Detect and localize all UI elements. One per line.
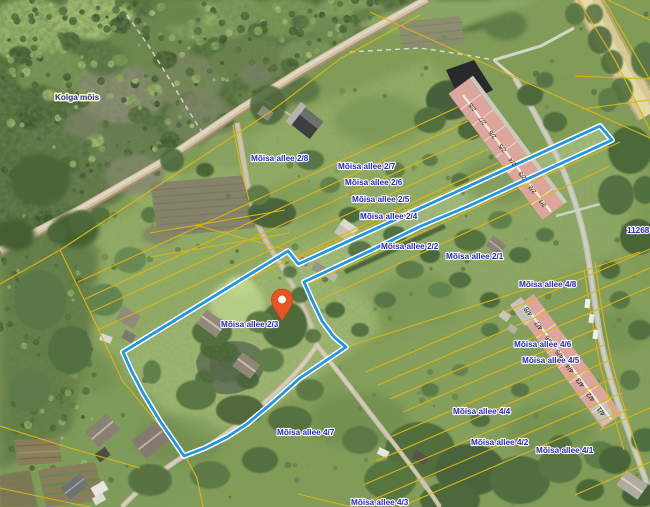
svg-text:Mõisa allee 4/2: Mõisa allee 4/2 bbox=[471, 438, 529, 447]
svg-text:Mõisa allee 4/1: Mõisa allee 4/1 bbox=[536, 446, 594, 455]
svg-text:11268: 11268 bbox=[627, 226, 650, 235]
svg-text:Mõisa allee 2/8: Mõisa allee 2/8 bbox=[251, 154, 309, 163]
svg-text:Mõisa allee 2/1: Mõisa allee 2/1 bbox=[446, 252, 504, 261]
svg-text:Mõisa allee 2/6: Mõisa allee 2/6 bbox=[345, 178, 403, 187]
svg-text:Kolga mõis: Kolga mõis bbox=[55, 93, 100, 102]
svg-text:Mõisa allee 4/8: Mõisa allee 4/8 bbox=[519, 280, 577, 289]
svg-text:Mõisa allee 4/4: Mõisa allee 4/4 bbox=[453, 407, 511, 416]
svg-text:Mõisa allee 4/3: Mõisa allee 4/3 bbox=[351, 498, 409, 507]
svg-text:Mõisa allee 2/2: Mõisa allee 2/2 bbox=[381, 242, 439, 251]
svg-text:Mõisa allee 2/7: Mõisa allee 2/7 bbox=[338, 162, 396, 171]
svg-text:Mõisa allee 2/3: Mõisa allee 2/3 bbox=[221, 320, 279, 329]
svg-text:Mõisa allee 4/6: Mõisa allee 4/6 bbox=[514, 340, 572, 349]
svg-text:Mõisa allee 4/5: Mõisa allee 4/5 bbox=[522, 356, 580, 365]
svg-text:Mõisa allee 2/4: Mõisa allee 2/4 bbox=[360, 212, 418, 221]
svg-text:Mõisa allee 2/5: Mõisa allee 2/5 bbox=[352, 195, 410, 204]
svg-text:Mõisa allee 4/7: Mõisa allee 4/7 bbox=[277, 428, 335, 437]
